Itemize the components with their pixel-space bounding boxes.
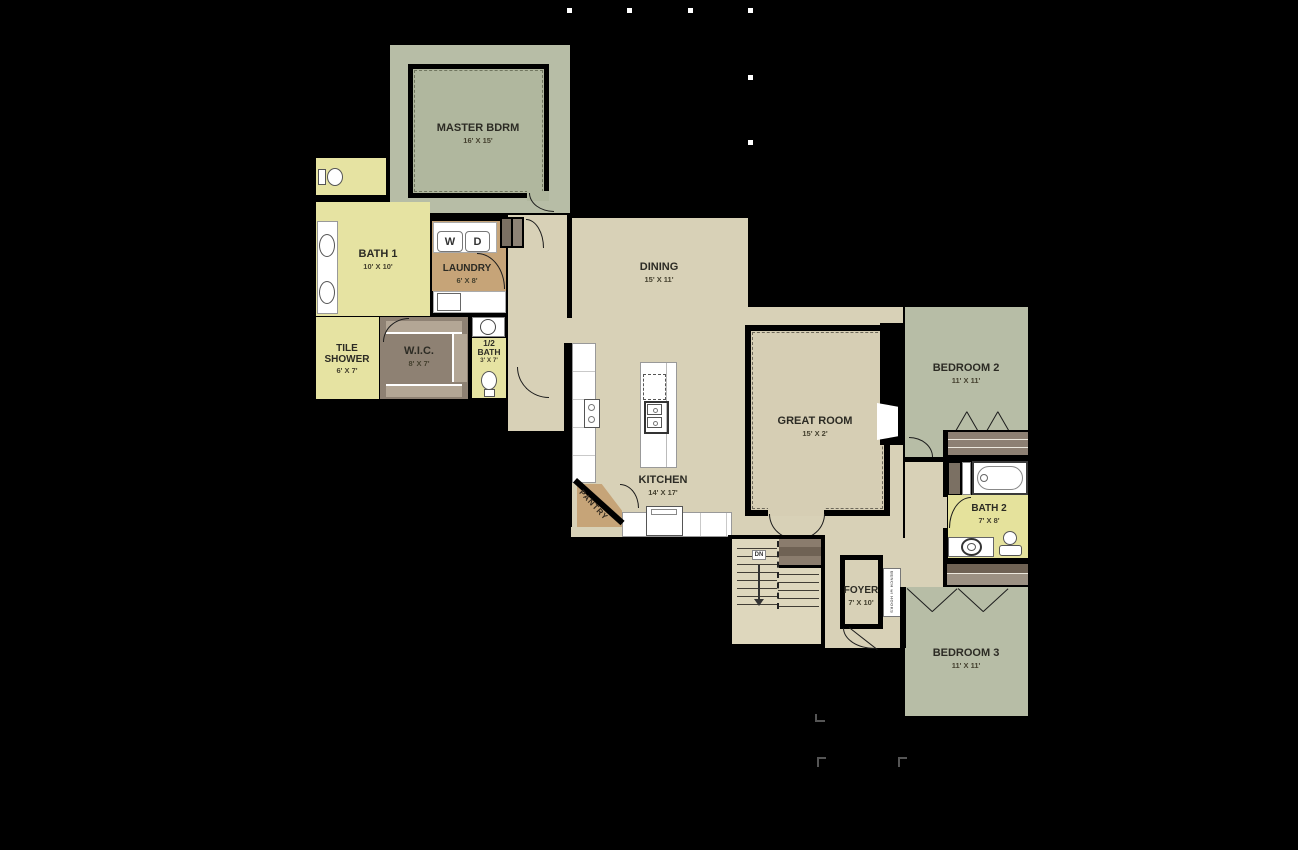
fireplace (877, 403, 898, 440)
burner (588, 404, 595, 411)
wall (567, 213, 572, 318)
wic-shelf (452, 334, 467, 382)
range (584, 399, 600, 428)
burner (588, 416, 595, 423)
toilet-tank (484, 389, 495, 397)
room-label-bath1: BATH 1 10' X 10' (359, 249, 398, 271)
bath1-sink (319, 281, 335, 304)
closet-shelf (947, 564, 1028, 573)
stair-arrow-head (754, 599, 764, 606)
hall-closet (947, 562, 1028, 586)
wall (905, 457, 947, 462)
stair-arrow-line (758, 565, 760, 601)
half-bath-sink (480, 319, 496, 335)
porch-corner-mark (817, 757, 826, 767)
toilet-bowl (481, 371, 497, 390)
hall-kitchen-opening (565, 318, 575, 343)
bath1-sink (319, 234, 335, 257)
wic-shelf (386, 384, 462, 397)
sink-ledge (651, 509, 677, 515)
sink-bowl (967, 543, 976, 551)
floor-plan: MASTER BDRM 16' X 15' BATH 1 10' X 10' W… (0, 0, 1298, 850)
washer: W (437, 231, 463, 252)
stairwell: DN (728, 535, 825, 648)
room-label-tile-shower: TILE SHOWER 6' X 7' (325, 344, 370, 375)
drain (653, 408, 658, 413)
wall (564, 343, 572, 527)
dryer: D (465, 231, 490, 252)
sink-basin (647, 417, 662, 428)
room-label-bedroom2: BEDROOM 2 11' X 11' (933, 363, 1000, 385)
stairs-dn-label: DN (752, 550, 766, 560)
bath2-sink (961, 538, 982, 556)
room-label-bedroom3: BEDROOM 3 11' X 11' (933, 648, 1000, 670)
room-label-half-bath: 1/2 BATH 3' X 7' (478, 339, 501, 365)
toilet-tank (1003, 531, 1017, 545)
stair-run (778, 567, 819, 609)
wall (943, 430, 948, 497)
room-label-kitchen: KITCHEN 14' X 17' (639, 475, 688, 497)
room-label-foyer: FOYER 7' X 10' (844, 586, 878, 607)
kitchen-island (640, 362, 677, 468)
wall (900, 587, 906, 648)
toilet-tank (318, 169, 326, 185)
tub-drain (980, 474, 988, 482)
room-label-dining: DINING 15' X 11' (640, 262, 679, 284)
bedroom-hall-floor (905, 457, 947, 587)
foyer-bench-label: BENCH w/ HOOKS (890, 571, 895, 613)
bath2-linen (948, 462, 961, 495)
refrigerator (643, 374, 666, 400)
room-label-bath2: BATH 2 7' X 8' (971, 504, 1006, 525)
stair-closet-shelf (779, 547, 821, 556)
linen-closet-door (513, 219, 522, 246)
linen-closet-door (502, 219, 511, 246)
utility-sink (437, 293, 461, 311)
porch-post-dot (748, 8, 753, 13)
hall-closet (947, 430, 1028, 457)
sink-basin (647, 404, 662, 415)
toilet-bowl (999, 545, 1022, 556)
bathtub (972, 461, 1028, 495)
porch-post-dot (748, 75, 753, 80)
dishwasher-sink (646, 506, 683, 536)
toilet-bowl (327, 168, 343, 186)
porch-corner-mark (815, 714, 825, 722)
bath2-linen-shelves (962, 462, 971, 495)
room-label-great-room: GREAT ROOM 15' X 2' (778, 416, 853, 438)
porch-post-dot (748, 140, 753, 145)
foyer-bench: BENCH w/ HOOKS (883, 568, 901, 617)
porch-post-dot (688, 8, 693, 13)
porch-post-dot (627, 8, 632, 13)
linen-closet (500, 217, 524, 248)
drain (653, 421, 658, 426)
island-sink-unit (644, 401, 669, 434)
room-label-wic: W.I.C. 8' X 7' (404, 346, 434, 368)
closet-shelf (947, 573, 1028, 585)
room-label-laundry: LAUNDRY 6' X 8' (443, 264, 492, 285)
porch-corner-mark (898, 757, 907, 767)
porch-post-dot (567, 8, 572, 13)
room-label-master: MASTER BDRM 16' X 15' (437, 123, 520, 145)
stair-closet (779, 539, 821, 568)
